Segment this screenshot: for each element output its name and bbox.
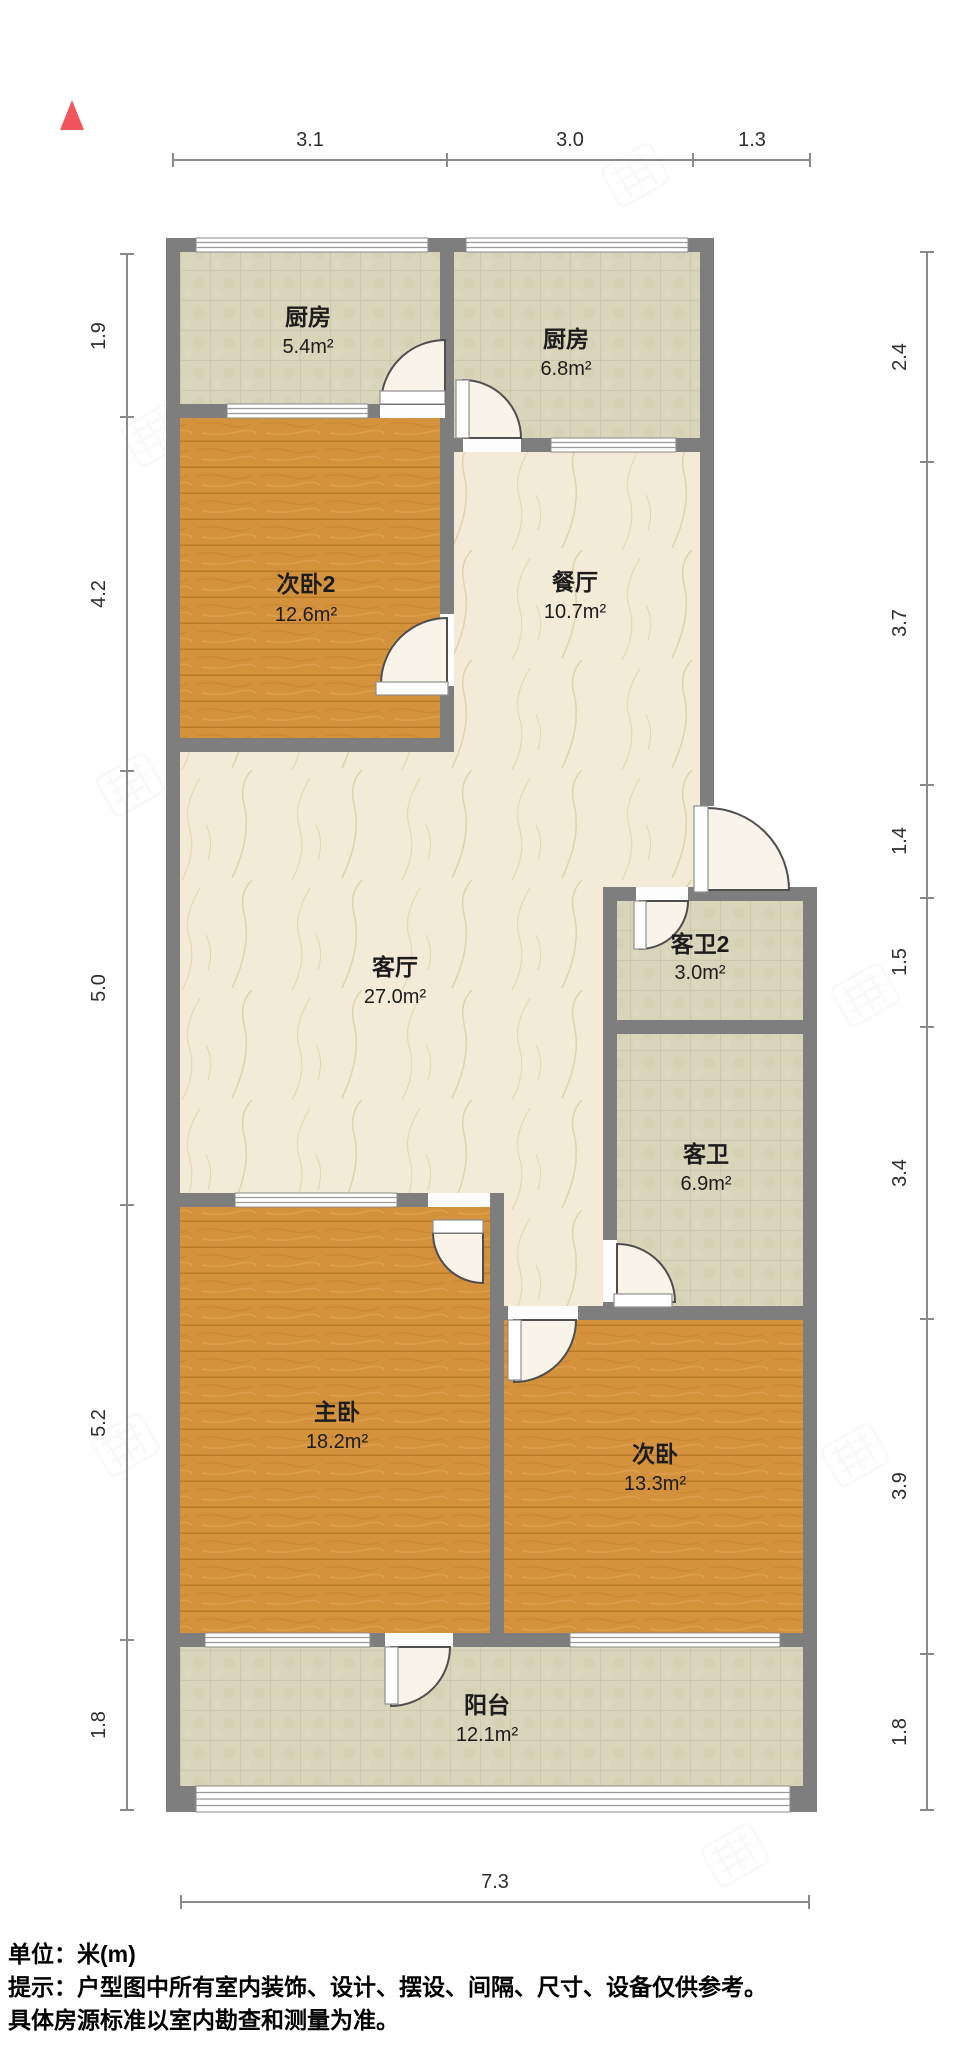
dim-right-7: 1.8 bbox=[889, 1718, 911, 1746]
master-bedroom-label: 主卧 bbox=[314, 1399, 360, 1425]
floorplan-drawing: 厨房 5.4m² 厨房 6.8m² 次卧2 12.6m² 餐厅 10.7m² 客… bbox=[0, 0, 977, 2048]
dim-right-6: 3.9 bbox=[889, 1472, 911, 1500]
dim-top-2: 3.0 bbox=[556, 129, 584, 151]
window bbox=[196, 238, 428, 252]
guest-bath2-label: 客卫2 bbox=[671, 931, 730, 957]
floorplan-page: 厨房 5.4m² 厨房 6.8m² 次卧2 12.6m² 餐厅 10.7m² 客… bbox=[0, 0, 977, 2048]
living-area: 27.0m² bbox=[364, 986, 427, 1008]
dim-left-5: 1.8 bbox=[88, 1711, 110, 1739]
dining-area: 10.7m² bbox=[544, 601, 607, 623]
footer-notes: 单位：米(m) 提示：户型图中所有室内装饰、设计、摆设、间隔、尺寸、设备仅供参考… bbox=[8, 1938, 968, 2037]
living-label: 客厅 bbox=[372, 954, 418, 980]
guest-bath-area: 6.9m² bbox=[680, 1173, 731, 1195]
dim-right-4: 1.5 bbox=[889, 948, 911, 976]
bedroom2-lower-area: 13.3m² bbox=[624, 1473, 687, 1495]
tip-note: 提示：户型图中所有室内装饰、设计、摆设、间隔、尺寸、设备仅供参考。 bbox=[8, 1971, 968, 2004]
guest-bath2-area: 3.0m² bbox=[674, 962, 725, 984]
window bbox=[227, 404, 368, 418]
window bbox=[551, 438, 676, 452]
guest-bath-label: 客卫 bbox=[683, 1141, 729, 1167]
window bbox=[205, 1633, 370, 1647]
bedroom2-upper-area: 12.6m² bbox=[275, 604, 338, 626]
dim-left-3: 5.0 bbox=[88, 974, 110, 1002]
dim-bottom-1: 7.3 bbox=[481, 1871, 509, 1893]
window bbox=[466, 238, 688, 252]
dining-label: 餐厅 bbox=[552, 569, 598, 595]
kitchen-left-area: 5.4m² bbox=[282, 336, 333, 358]
dimension-right: 2.4 3.7 1.4 1.5 3.4 3.9 1.8 bbox=[889, 252, 934, 1810]
dimension-top: 3.1 3.0 1.3 bbox=[173, 129, 810, 167]
north-arrow-icon bbox=[60, 100, 84, 130]
kitchen-left-label: 厨房 bbox=[285, 304, 331, 330]
tip-note-2: 具体房源标准以室内勘查和测量为准。 bbox=[8, 2004, 968, 2037]
kitchen-right-label: 厨房 bbox=[543, 326, 589, 352]
balcony-label: 阳台 bbox=[464, 1692, 510, 1718]
dim-top-1: 3.1 bbox=[296, 129, 324, 151]
bedroom2-upper-label: 次卧2 bbox=[277, 571, 336, 597]
window bbox=[570, 1633, 780, 1647]
dim-right-2: 3.7 bbox=[889, 609, 911, 637]
dim-right-3: 1.4 bbox=[889, 827, 911, 855]
kitchen-right-area: 6.8m² bbox=[540, 358, 591, 380]
dim-right-5: 3.4 bbox=[889, 1159, 911, 1187]
dim-left-1: 1.9 bbox=[88, 322, 110, 350]
dimension-left: 1.9 4.2 5.0 5.2 1.8 bbox=[88, 254, 134, 1810]
dim-left-4: 5.2 bbox=[88, 1409, 110, 1437]
balcony-area: 12.1m² bbox=[456, 1724, 519, 1746]
dim-top-3: 1.3 bbox=[738, 129, 766, 151]
unit-note: 单位：米(m) bbox=[8, 1938, 968, 1971]
balcony-window bbox=[196, 1786, 790, 1812]
corridor-floor bbox=[504, 887, 603, 1320]
window bbox=[235, 1193, 397, 1207]
dim-left-2: 4.2 bbox=[88, 580, 110, 608]
entry-door bbox=[694, 806, 789, 892]
master-bedroom-area: 18.2m² bbox=[306, 1431, 369, 1453]
bedroom2-lower-label: 次卧 bbox=[632, 1441, 678, 1467]
dim-right-1: 2.4 bbox=[889, 343, 911, 371]
